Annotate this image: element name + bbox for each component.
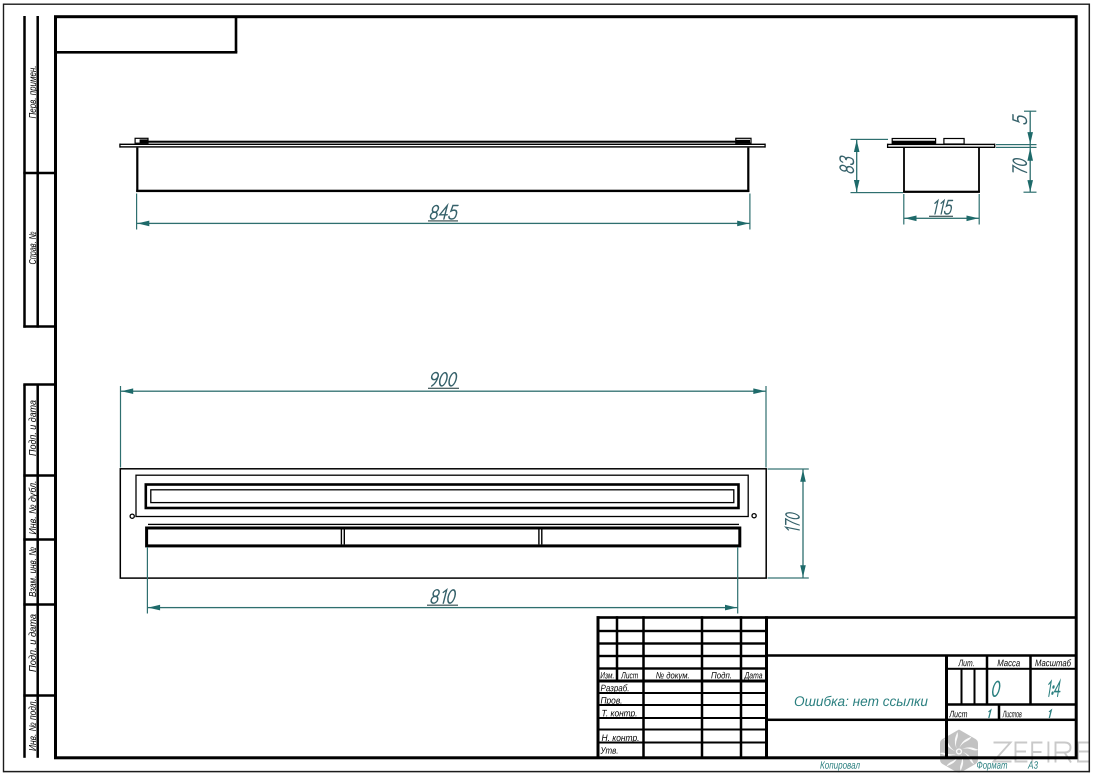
svg-text:Формат: Формат — [976, 760, 1007, 772]
svg-text:Масса: Масса — [997, 658, 1020, 669]
svg-text:Перв. примен.: Перв. примен. — [28, 66, 39, 119]
svg-text:Т. контр.: Т. контр. — [601, 708, 637, 719]
svg-text:Подп.: Подп. — [711, 670, 732, 680]
svg-text:Копировал: Копировал — [820, 760, 860, 772]
svg-text:Масштаб: Масштаб — [1035, 658, 1072, 669]
svg-text:Дата: Дата — [744, 670, 763, 680]
svg-text:Подп. и дата: Подп. и дата — [28, 614, 39, 672]
svg-text:Пров.: Пров. — [600, 696, 622, 707]
svg-text:Взам. инв. №: Взам. инв. № — [28, 547, 39, 597]
svg-text:Разраб.: Разраб. — [600, 683, 629, 694]
svg-text:Утв.: Утв. — [600, 746, 619, 757]
svg-text:Ошибка: нет ссылки: Ошибка: нет ссылки — [794, 693, 928, 709]
svg-text:Подп. и дата: Подп. и дата — [28, 400, 39, 456]
svg-text:Изм.: Изм. — [600, 670, 614, 680]
svg-text:Лист: Лист — [621, 670, 639, 680]
svg-text:Справ. №: Справ. № — [28, 231, 39, 264]
svg-text:Листов: Листов — [1002, 709, 1022, 720]
svg-text:Инв. № дубл.: Инв. № дубл. — [27, 481, 39, 535]
svg-text:Лит.: Лит. — [958, 658, 975, 669]
svg-text:А3: А3 — [1027, 760, 1038, 772]
svg-text:№ докум.: № докум. — [656, 670, 690, 680]
svg-text:Н. контр.: Н. контр. — [601, 733, 639, 744]
svg-text:Лист: Лист — [949, 709, 968, 720]
svg-text:Инв. № подл.: Инв. № подл. — [28, 699, 39, 751]
